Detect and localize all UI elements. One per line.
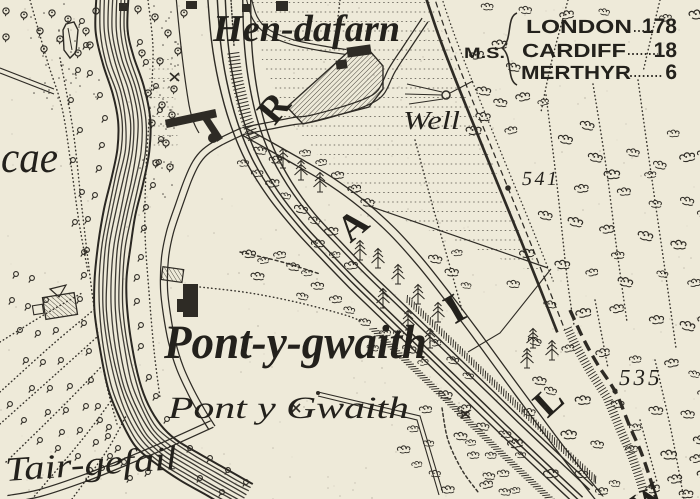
svg-text:cae: cae: [1, 133, 58, 182]
svg-text:CARDIFF: CARDIFF: [522, 41, 626, 62]
svg-text:M.S.: M.S.: [464, 45, 505, 62]
svg-text:178: 178: [642, 15, 677, 38]
svg-text:Pont-y-gwaith: Pont-y-gwaith: [163, 316, 427, 369]
svg-text:MERTHYR: MERTHYR: [521, 63, 631, 84]
svg-text:Pont y Gwaith: Pont y Gwaith: [167, 390, 409, 425]
svg-text:18: 18: [654, 39, 678, 62]
svg-text:541: 541: [522, 168, 560, 190]
svg-text:6: 6: [665, 61, 677, 84]
svg-text:LONDON: LONDON: [526, 17, 632, 38]
svg-text:Well: Well: [403, 106, 460, 135]
svg-text:535: 535: [619, 365, 663, 390]
svg-text:Hen-dafarn: Hen-dafarn: [212, 8, 400, 50]
